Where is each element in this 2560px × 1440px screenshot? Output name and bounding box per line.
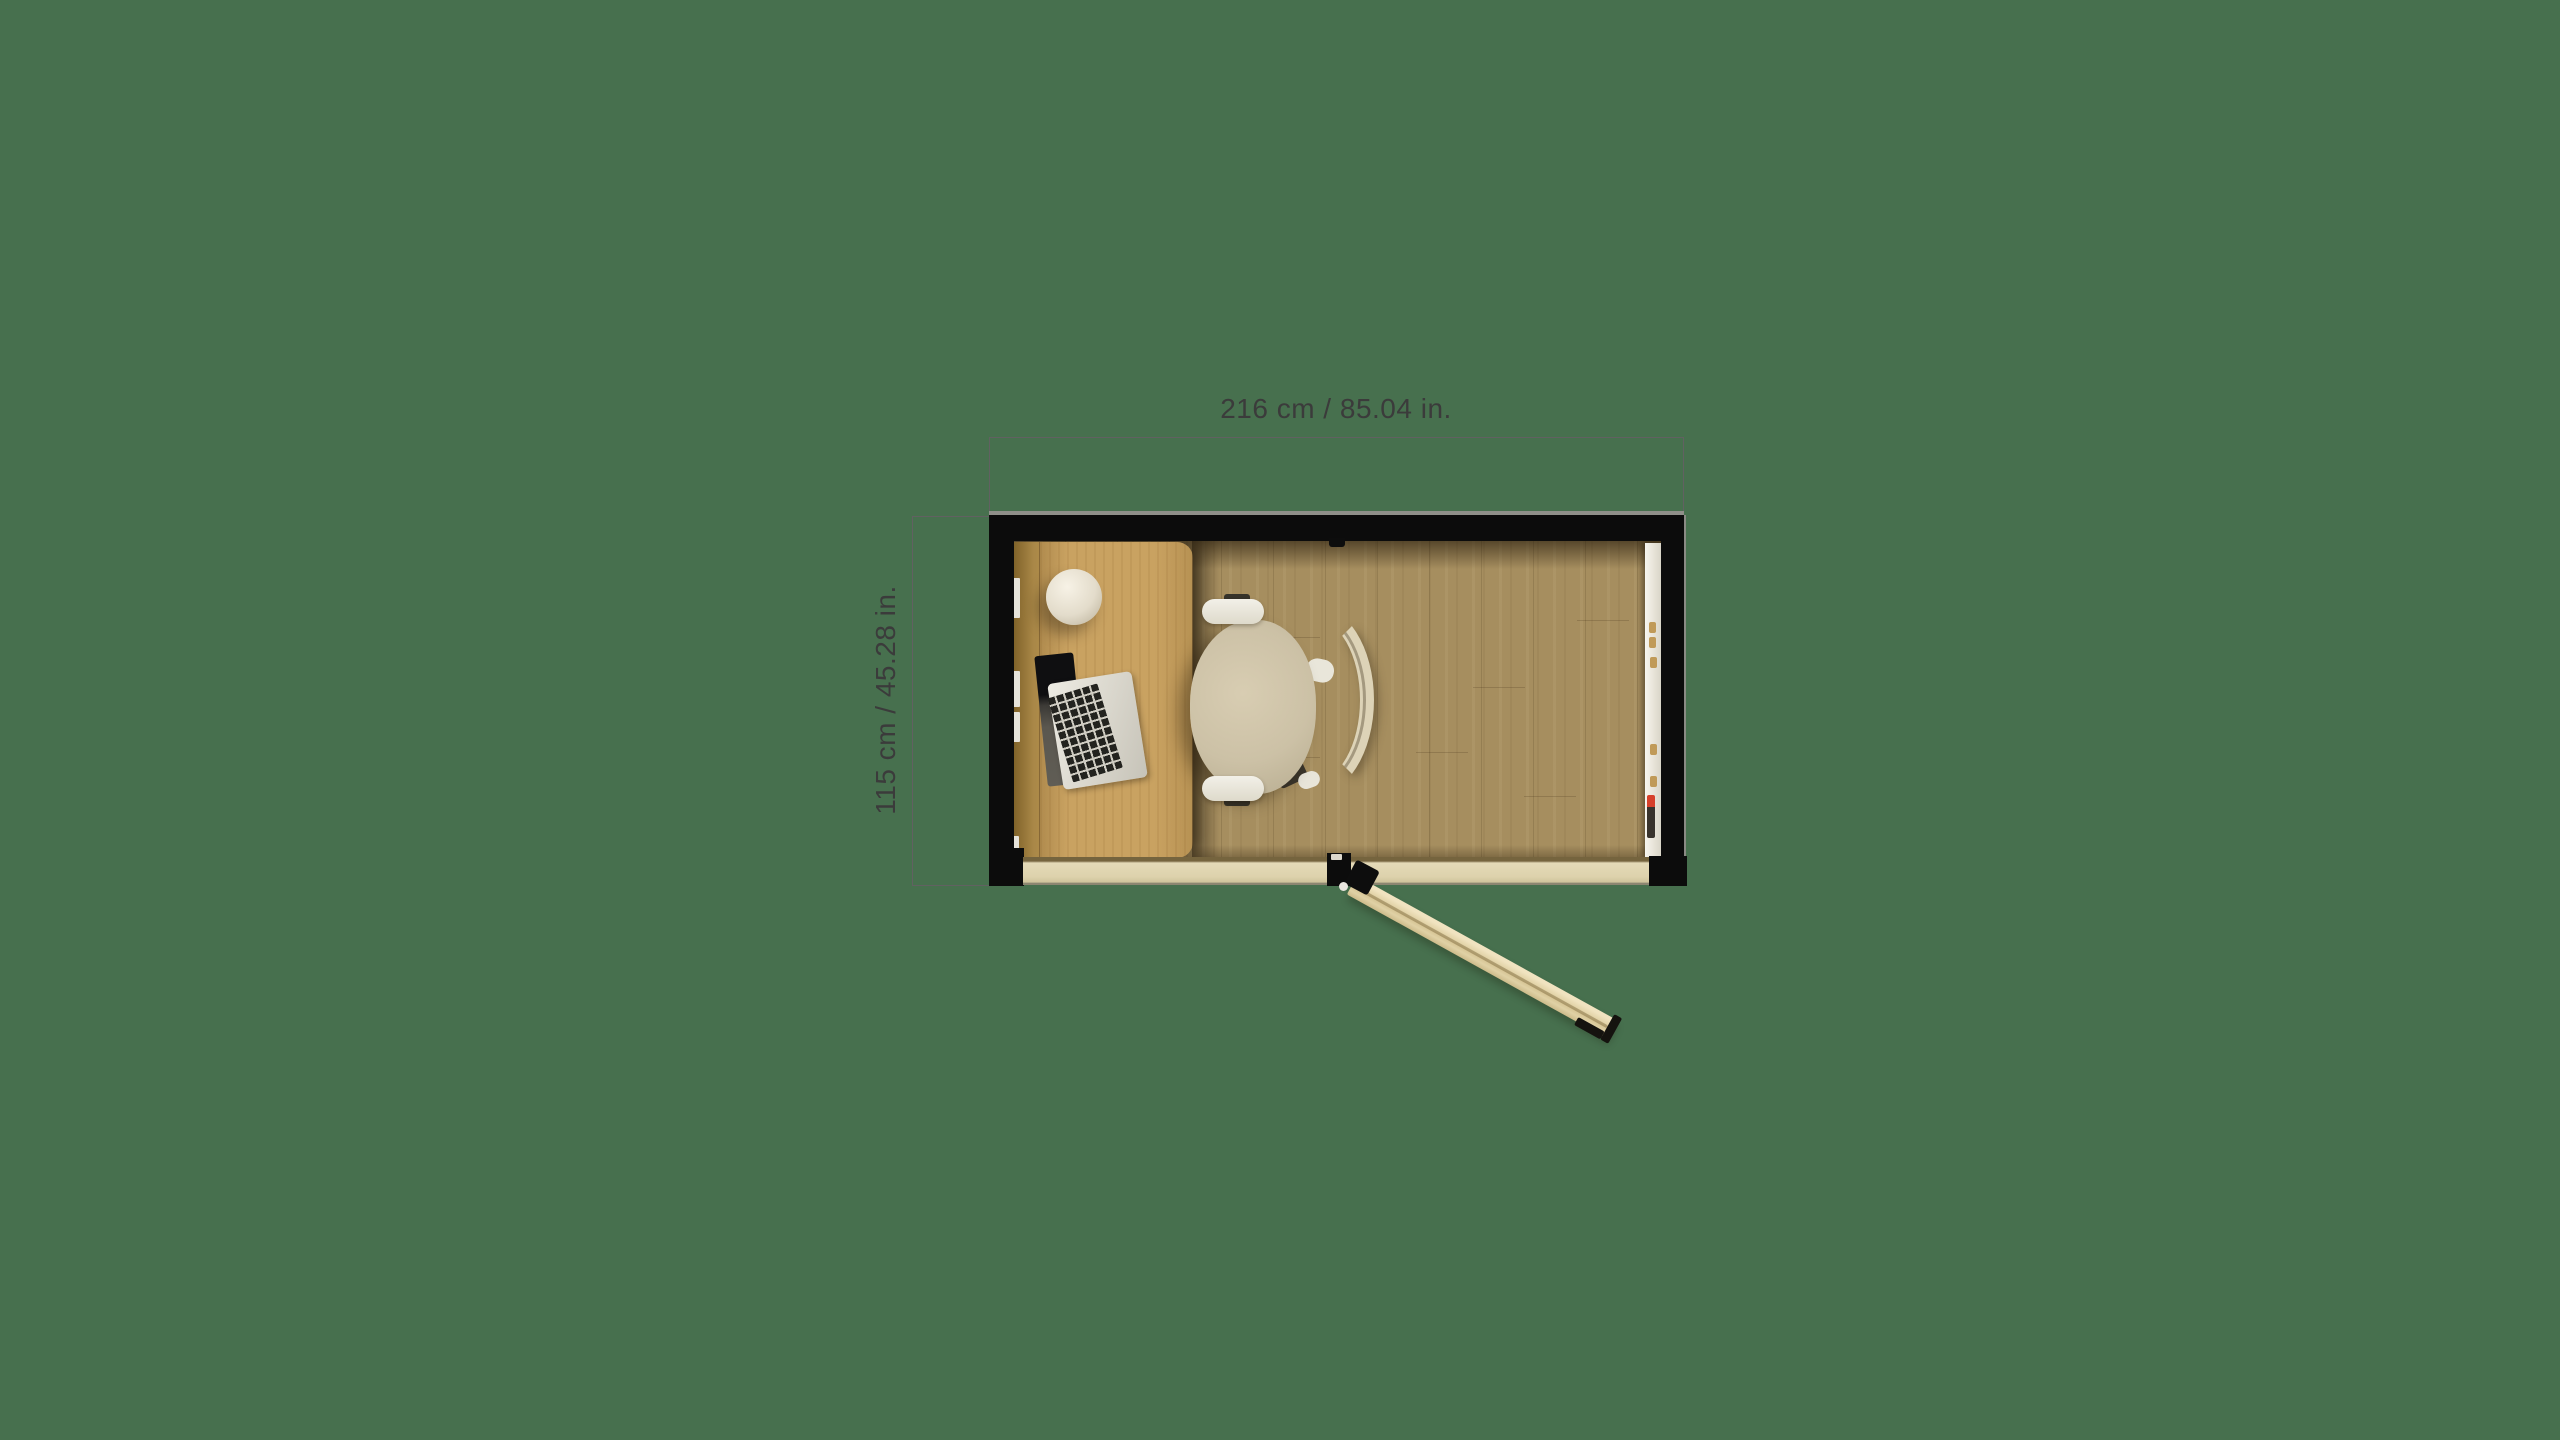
door-handle-endcap	[1600, 1014, 1622, 1044]
sphere-lamp	[1046, 569, 1102, 625]
wall-corner-bottom-right	[1649, 856, 1687, 886]
wall-panel-seam	[1329, 538, 1345, 547]
width-dimension-label: 216 cm / 85.04 in.	[1220, 393, 1452, 425]
height-dimension-label: 115 cm / 45.28 in.	[870, 585, 902, 815]
door-leaf-open	[1347, 876, 1618, 1039]
width-dimension-line	[989, 437, 1684, 438]
chair-seat	[1190, 620, 1316, 794]
height-dimension-line	[912, 516, 913, 886]
door-groove	[1356, 887, 1608, 1028]
laptop-keyboard-deck	[1047, 671, 1148, 790]
whiteboard-magnet	[1650, 657, 1657, 668]
height-extension-line-bottom	[912, 885, 989, 886]
height-extension-line-top	[912, 516, 989, 517]
whiteboard-magnet	[1650, 744, 1657, 755]
door-strike-plate	[1331, 854, 1342, 860]
marker-cap	[1647, 795, 1655, 807]
floor-plank-joint	[1524, 796, 1576, 797]
floor-plank-joint	[1577, 620, 1629, 621]
wall-corner-bottom-left	[989, 848, 1024, 886]
wall-mount-mark	[1013, 712, 1020, 742]
floor-plank-joint	[1473, 687, 1525, 688]
whiteboard-magnet	[1649, 622, 1656, 633]
whiteboard-magnet	[1649, 637, 1656, 648]
wall-mount-mark	[1013, 578, 1020, 618]
width-extension-line-left	[989, 437, 990, 516]
chair-armrest	[1202, 776, 1264, 801]
wall-right	[1661, 515, 1684, 886]
chair-armrest	[1202, 599, 1264, 624]
whiteboard-magnet	[1650, 776, 1657, 787]
width-extension-line-right	[1683, 437, 1684, 516]
wall-outer-highlight	[1684, 515, 1686, 886]
wall-mount-mark	[1013, 671, 1020, 707]
door-hinge-pin	[1339, 882, 1348, 891]
floor-plank-joint	[1416, 752, 1468, 753]
wall-left	[989, 515, 1014, 886]
marker-body	[1647, 807, 1655, 838]
